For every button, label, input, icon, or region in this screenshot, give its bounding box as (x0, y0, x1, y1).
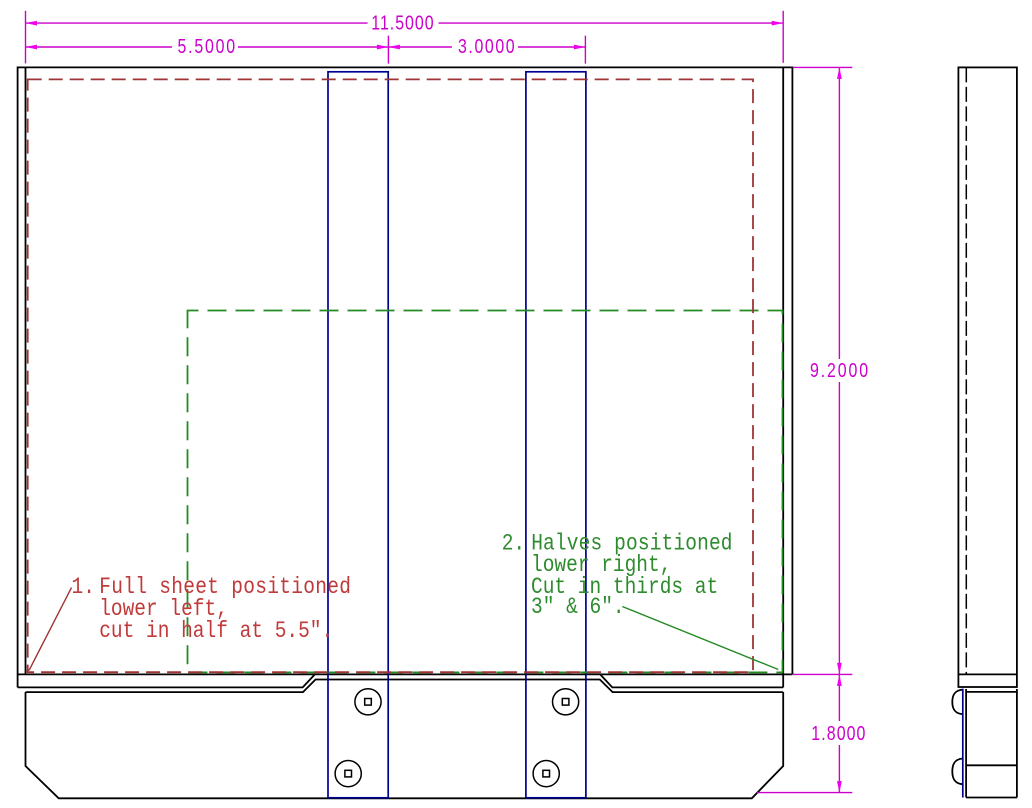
svg-text:5.5000: 5.5000 (178, 34, 237, 57)
svg-text:2.: 2. (502, 531, 525, 557)
svg-text:11.5000: 11.5000 (371, 11, 434, 34)
svg-text:3.0000: 3.0000 (458, 34, 516, 57)
svg-text:1.: 1. (72, 575, 95, 601)
svg-text:cut in half at 5.5″.: cut in half at 5.5″. (99, 619, 333, 645)
svg-text:1.8000: 1.8000 (811, 721, 866, 744)
svg-text:3″ & 6″.: 3″ & 6″. (531, 595, 625, 621)
svg-text:9.2000: 9.2000 (810, 358, 870, 381)
